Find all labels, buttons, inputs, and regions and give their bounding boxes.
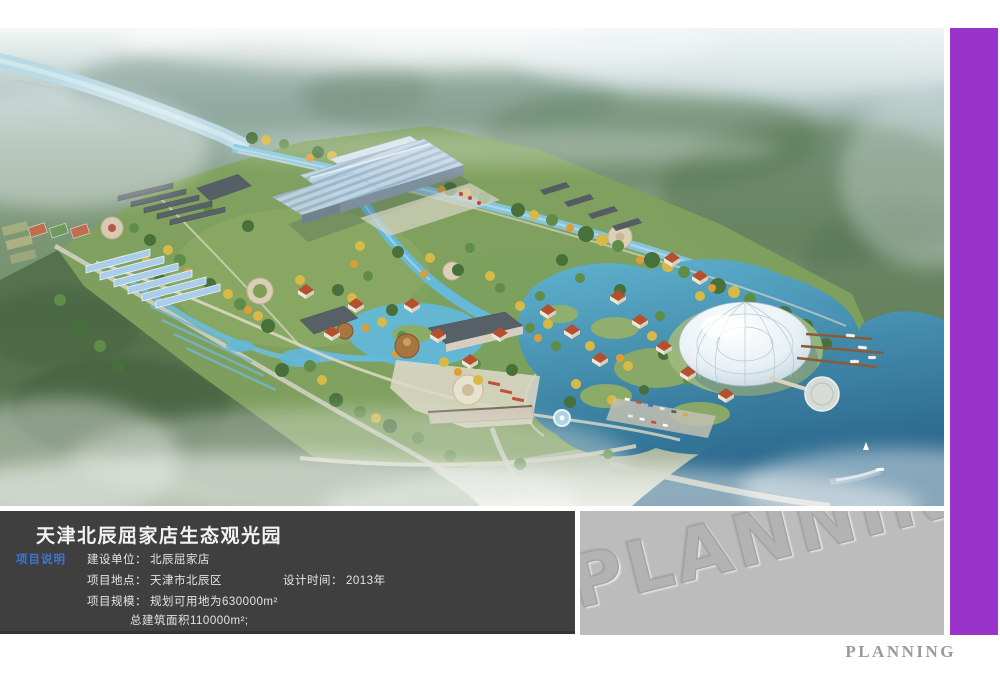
field-label: 项目地点： [87,575,147,587]
field-value: 天津市北辰区 [150,575,222,587]
field-label: 设计时间： [283,575,343,587]
project-info-panel: 天津北辰屈家店生态观光园 项目说明 建设单位：北辰屈家店 项目地点：天津市北辰区… [0,511,575,634]
field-location: 项目地点：天津市北辰区 [87,572,222,588]
field-value: 北辰屈家店 [150,554,210,566]
field-value: 2013年 [346,575,386,587]
aerial-rendering [0,28,944,506]
field-label: 项目规模： [87,596,147,608]
field-value: 总建筑面积110000m²; [130,615,249,627]
aerial-scene [0,28,944,506]
watermark-text: PLANNING [580,511,944,625]
section-tag: 项目说明 [16,551,66,567]
project-title: 天津北辰屈家店生态观光园 [36,521,282,548]
accent-bar [950,28,998,635]
watermark-panel: PLANNING [580,511,944,635]
presentation-board: 天津北辰屈家店生态观光园 项目说明 建设单位：北辰屈家店 项目地点：天津市北辰区… [0,0,1000,678]
field-label: 建设单位： [87,554,147,566]
field-construction-unit: 建设单位：北辰屈家店 [87,551,210,567]
field-scale: 项目规模：规划可用地为630000m² [87,593,278,609]
field-value: 规划可用地为630000m² [150,596,278,608]
field-design-time: 设计时间：2013年 [283,572,386,588]
footer-brand: PLANNING [0,642,956,662]
field-scale-2: 总建筑面积110000m²; [130,612,249,628]
